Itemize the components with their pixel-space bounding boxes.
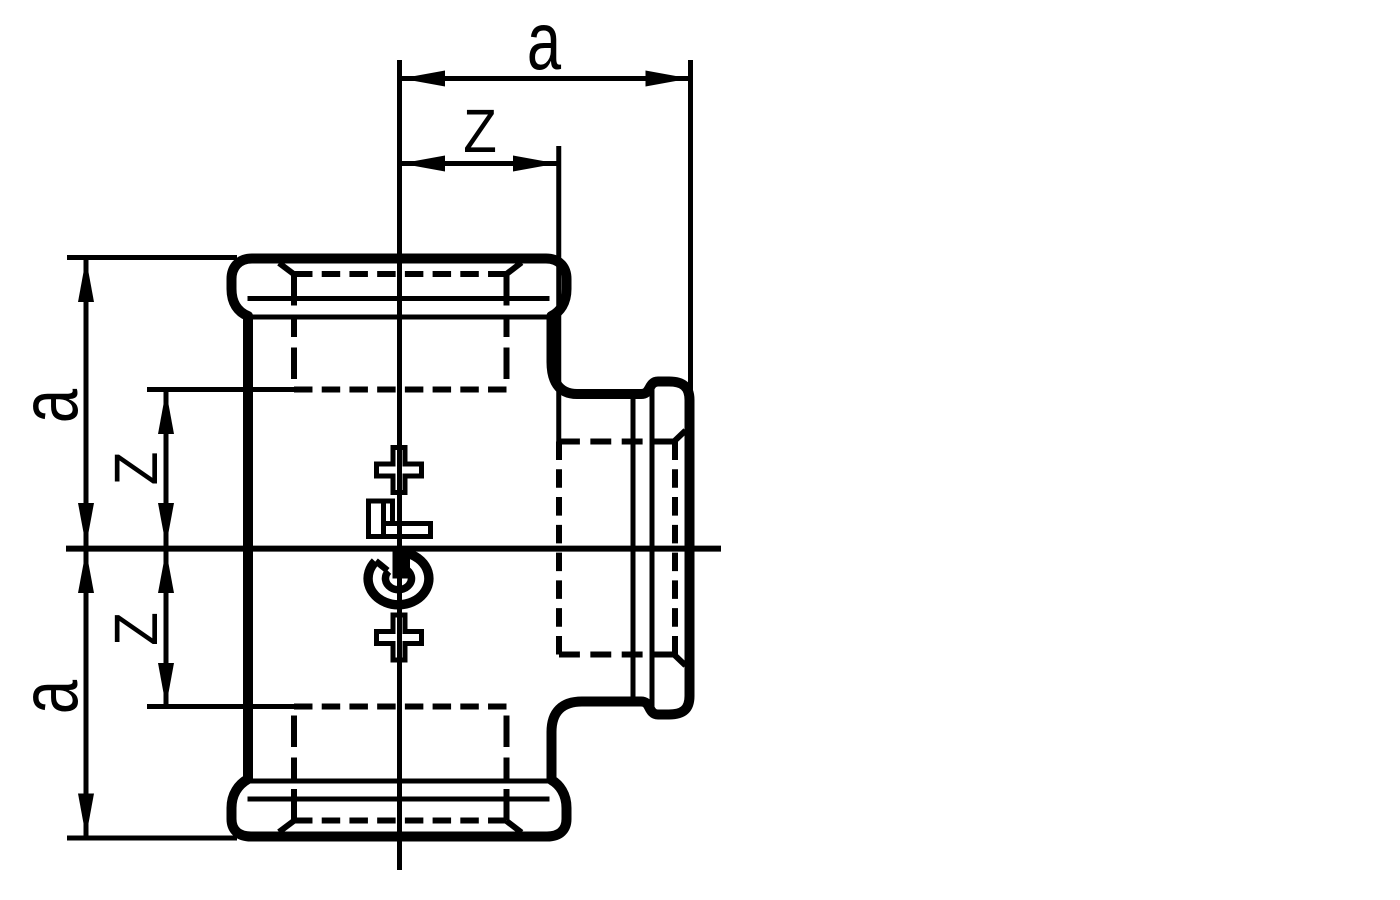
svg-text:Z: Z [102,612,170,646]
svg-text:a: a [3,679,95,714]
svg-text:a: a [527,0,562,87]
svg-text:a: a [3,388,95,423]
svg-text:Z: Z [463,97,497,165]
svg-text:Z: Z [102,452,170,486]
